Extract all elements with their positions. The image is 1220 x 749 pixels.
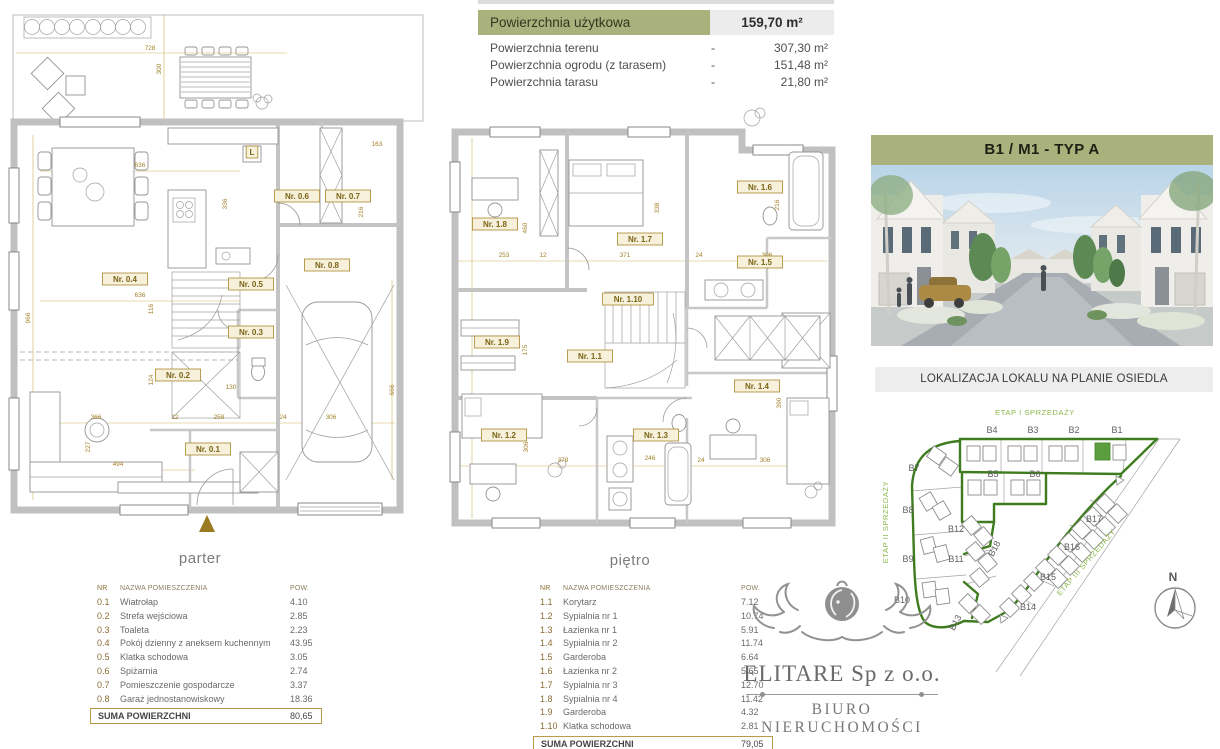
dimension-label: 12 [539, 252, 547, 259]
room-label: Nr. 1.10 [614, 295, 643, 304]
plot-house [1024, 446, 1037, 461]
plot-house [983, 446, 996, 461]
room-name: Pokój dzienny z aneksem kuchennym [120, 637, 290, 651]
summary-label: Powierzchnia tarasu [478, 74, 703, 91]
plot-label: B5 [987, 469, 998, 479]
dimension-label: 390 [776, 397, 783, 408]
plot-label: B14 [1020, 602, 1036, 612]
room-label: Nr. 1.6 [748, 183, 773, 192]
summary-value: 151,48 m² [723, 57, 834, 74]
pietro-caption: piętro [580, 552, 680, 569]
room-row: 1.8Sypialnia nr 411.42 [533, 693, 773, 707]
compass-needle-dark [1167, 589, 1175, 617]
room-nr: 1.6 [533, 665, 563, 679]
plot-house [1011, 480, 1024, 495]
dimension-label: 124 [148, 374, 155, 385]
table-header: NR NAZWA POMIESZCZENIA POW. [90, 585, 322, 592]
summary-dash: - [703, 74, 723, 91]
dimension-label: 666 [389, 384, 396, 395]
plot-house [933, 545, 949, 563]
plot-label: B17 [1086, 514, 1102, 524]
plot-house [1027, 480, 1040, 495]
room-area: 2.74 [290, 665, 322, 679]
plot-house [1049, 446, 1062, 461]
dimension-label: 371 [620, 252, 631, 259]
plot-label: B16 [1064, 542, 1080, 552]
dimension-label: 494 [113, 461, 124, 468]
dimension-label: 216 [774, 199, 781, 210]
dimension-label: 336 [222, 198, 229, 209]
plot-label: B12 [948, 524, 964, 534]
development-photo [871, 165, 1213, 346]
room-area: 4.10 [290, 596, 322, 610]
dimension-label: 130 [226, 384, 237, 391]
plot-house [1065, 446, 1078, 461]
room-row: 0.4Pokój dzienny z aneksem kuchennym43.9… [90, 637, 322, 651]
room-row: 1.10Klatka schodowa2.81 [533, 720, 773, 734]
unit-type-header: B1 / M1 - TYP A [871, 135, 1213, 165]
room-row: 1.1Korytarz7.12 [533, 596, 773, 610]
room-area: 2.23 [290, 624, 322, 638]
compass [1155, 588, 1195, 628]
room-name: Sypialnia nr 1 [563, 610, 741, 624]
dimension-label: 306 [523, 441, 530, 452]
room-nr: 1.8 [533, 693, 563, 707]
parter-room-rows: 0.1Wiatrołap4.100.2Strefa wejściowa2.850… [90, 596, 322, 706]
dimension-label: 253 [499, 252, 510, 259]
top-strip [478, 0, 834, 4]
summary-dash: - [703, 40, 723, 57]
room-row: 1.7Sypialnia nr 312.70 [533, 679, 773, 693]
area-summary-table: Powierzchnia użytkowa 159,70 m² Powierzc… [478, 0, 834, 91]
room-name: Wiatrołap [120, 596, 290, 610]
header-pow: POW. [290, 585, 322, 592]
highlighted-plot-house [1095, 443, 1110, 460]
room-label: Nr. 0.5 [239, 280, 264, 289]
room-name: Toaleta [120, 624, 290, 638]
summary-row: Powierzchnia terenu - 307,30 m² [478, 40, 834, 57]
dimension-label: 306 [760, 457, 771, 464]
north-label: N [1169, 570, 1178, 584]
room-nr: 0.3 [90, 624, 120, 638]
stairs [172, 272, 240, 418]
logo-crest-icon [742, 566, 942, 654]
dimension-label: 378 [558, 457, 569, 464]
room-area: 3.05 [290, 651, 322, 665]
dimension-label: 12 [171, 414, 179, 421]
room-row: 0.7Pomieszczenie gospodarcze3.37 [90, 679, 322, 693]
logo-divider [746, 694, 938, 695]
plot-label: B9 [902, 554, 913, 564]
company-name: ELITARE Sp z o.o. [742, 661, 942, 687]
pietro-room-table: NR NAZWA POMIESZCZENIA POW. 1.1Korytarz7… [533, 585, 773, 749]
room-row: 0.6Spiżarnia2.74 [90, 665, 322, 679]
room-nr: 1.2 [533, 610, 563, 624]
plot-label: B6 [1029, 469, 1040, 479]
terrace [13, 15, 423, 125]
room-area: 18.36 [290, 693, 322, 707]
dimension-label: 306 [326, 414, 337, 421]
header-name: NAZWA POMIESZCZENIA [563, 585, 741, 592]
room-name: Garaż jednostanowiskowy [120, 693, 290, 707]
room-area: 3.37 [290, 679, 322, 693]
suma-label: SUMA POWIERZCHNI [98, 709, 290, 723]
company-subtitle: BIURO NIERUCHOMOŚCI [742, 701, 942, 737]
plot-label: B2 [1068, 425, 1079, 435]
suma-value: 79,05 [741, 737, 769, 749]
room-name: Korytarz [563, 596, 741, 610]
header-nr: NR [90, 585, 120, 592]
room-nr: 0.4 [90, 637, 120, 651]
room-name: Klatka schodowa [563, 720, 741, 734]
dimension-label: 460 [522, 222, 529, 233]
pietro-room-rows: 1.1Korytarz7.121.2Sypialnia nr 110.741.3… [533, 596, 773, 734]
room-label: Nr. 0.6 [285, 192, 310, 201]
room-nr: 1.4 [533, 637, 563, 651]
dimension-label: 636 [135, 162, 146, 169]
room-label: Nr. 0.4 [113, 275, 138, 284]
plot-label: B8 [902, 505, 913, 515]
stairs [605, 292, 685, 388]
offer-sheet: 7283006361632163366369661161243661225824… [0, 0, 1220, 749]
summary-label: Powierzchnia terenu [478, 40, 703, 57]
room-label: Nr. 0.8 [315, 261, 340, 270]
room-name: Łazienka nr 1 [563, 624, 741, 638]
room-label: Nr. 1.1 [578, 352, 603, 361]
dimension-label: 636 [135, 292, 146, 299]
room-row: 0.5Klatka schodowa3.05 [90, 651, 322, 665]
dimension-label: 116 [148, 303, 155, 314]
room-nr: 1.7 [533, 679, 563, 693]
plot-label: B1 [1111, 425, 1122, 435]
plot-house [967, 446, 980, 461]
room-name: Garderoba [563, 706, 741, 720]
furniture [461, 108, 830, 510]
room-name: Klatka schodowa [120, 651, 290, 665]
room-row: 1.3Łazienka nr 15.91 [533, 624, 773, 638]
plot-label: B4 [986, 425, 997, 435]
dimension-label: 24 [695, 252, 703, 259]
room-label: Nr. 0.2 [166, 371, 191, 380]
company-logo: ELITARE Sp z o.o. BIURO NIERUCHOMOŚCI [742, 566, 942, 737]
dimension-label: 366 [91, 414, 102, 421]
room-nr: 1.1 [533, 596, 563, 610]
room-nr: 0.2 [90, 610, 120, 624]
summary-label: Powierzchnia ogrodu (z tarasem) [478, 57, 703, 74]
dimension-label: 258 [214, 414, 225, 421]
usable-area-value: 159,70 m² [710, 10, 834, 35]
summary-value: 21,80 m² [723, 74, 834, 91]
room-nr: 0.5 [90, 651, 120, 665]
parter-room-table: NR NAZWA POMIESZCZENIA POW. 0.1Wiatrołap… [90, 585, 322, 724]
room-name: Sypialnia nr 4 [563, 693, 741, 707]
dimension-label: 338 [654, 202, 661, 213]
etap-label: ETAP I SPRZEDAŻY [995, 408, 1075, 417]
room-label: Nr. 1.7 [628, 235, 653, 244]
summary-value: 307,30 m² [723, 40, 834, 57]
room-row: 1.4Sypialnia nr 211.74 [533, 637, 773, 651]
room-nr: 1.5 [533, 651, 563, 665]
room-label: L [250, 148, 255, 157]
parter-suma-row: SUMA POWIERZCHNI 80,65 [90, 708, 322, 724]
header-name: NAZWA POMIESZCZENIA [120, 585, 290, 592]
room-row: 1.2Sypialnia nr 110.74 [533, 610, 773, 624]
dimension-label: 246 [645, 455, 656, 462]
room-nr: 0.8 [90, 693, 120, 707]
dimension-label: 966 [25, 312, 32, 323]
room-row: 0.2Strefa wejściowa2.85 [90, 610, 322, 624]
room-name: Pomieszczenie gospodarcze [120, 679, 290, 693]
floor-plan-pietro: 2531237124306460338216175378246243063063… [437, 98, 847, 553]
plot-label: B15 [1040, 572, 1056, 582]
floor-plan-parter: 7283006361632163366369661161243661225824… [0, 0, 430, 545]
room-name: Łazienka nr 2 [563, 665, 741, 679]
room-label: Nr. 1.5 [748, 258, 773, 267]
north-label-group: N [1169, 570, 1178, 584]
dimension-label: 216 [358, 206, 365, 217]
dimension-label: 227 [85, 441, 92, 452]
room-nr: 1.3 [533, 624, 563, 638]
plot-label: B3 [1027, 425, 1038, 435]
room-nr: 0.1 [90, 596, 120, 610]
summary-row: Powierzchnia tarasu - 21,80 m² [478, 74, 834, 91]
room-row: 0.8Garaż jednostanowiskowy18.36 [90, 693, 322, 707]
table-header: NR NAZWA POMIESZCZENIA POW. [533, 585, 773, 592]
summary-dash: - [703, 57, 723, 74]
room-row: 0.1Wiatrołap4.10 [90, 596, 322, 610]
room-row: 1.6Łazienka nr 25.65 [533, 665, 773, 679]
dimension-label: 300 [156, 63, 163, 74]
dimension-label: 175 [522, 344, 529, 355]
entrance-marker [199, 515, 215, 532]
summary-row: Powierzchnia ogrodu (z tarasem) - 151,48… [478, 57, 834, 74]
suma-label: SUMA POWIERZCHNI [541, 737, 741, 749]
plot-house [968, 480, 981, 495]
room-label: Nr. 0.3 [239, 328, 264, 337]
pietro-suma-row: SUMA POWIERZCHNI 79,05 [533, 736, 773, 749]
compass-needle-light [1175, 589, 1184, 619]
room-name: Garderoba [563, 651, 741, 665]
plot-label: B7 [908, 463, 919, 473]
dimension-label: 24 [697, 457, 705, 464]
room-row: 1.5Garderoba6.64 [533, 651, 773, 665]
room-label: Nr. 1.9 [485, 338, 510, 347]
plot-house [1113, 445, 1126, 460]
room-name: Sypialnia nr 3 [563, 679, 741, 693]
room-nr: 1.9 [533, 706, 563, 720]
parter-caption: parter [150, 550, 250, 567]
etap-label: ETAP II SPRZEDAŻY [881, 481, 890, 563]
room-row: 0.3Toaleta2.23 [90, 624, 322, 638]
room-label: Nr. 1.4 [745, 382, 770, 391]
dimension-label: 24 [279, 414, 287, 421]
room-name: Sypialnia nr 2 [563, 637, 741, 651]
room-area: 43.95 [290, 637, 322, 651]
room-label: Nr. 1.8 [483, 220, 508, 229]
plot-house [1008, 446, 1021, 461]
header-nr: NR [533, 585, 563, 592]
usable-area-label: Powierzchnia użytkowa [478, 10, 710, 35]
room-label: Nr. 1.3 [644, 431, 669, 440]
room-nr: 1.10 [533, 720, 563, 734]
room-name: Spiżarnia [120, 665, 290, 679]
room-nr: 0.7 [90, 679, 120, 693]
location-title-bar: LOKALIZACJA LOKALU NA PLANIE OSIEDLA [875, 367, 1213, 392]
room-nr: 0.6 [90, 665, 120, 679]
plot-label: B11 [948, 554, 963, 564]
dimension-label: 163 [372, 141, 383, 148]
room-area: 2.85 [290, 610, 322, 624]
room-name: Strefa wejściowa [120, 610, 290, 624]
room-label: Nr. 0.7 [336, 192, 361, 201]
room-label: Nr. 1.2 [492, 431, 517, 440]
room-row: 1.9Garderoba4.32 [533, 706, 773, 720]
suma-value: 80,65 [290, 709, 318, 723]
room-label: Nr. 0.1 [196, 445, 221, 454]
dimension-label: 728 [145, 45, 156, 52]
plot-house [984, 480, 997, 495]
